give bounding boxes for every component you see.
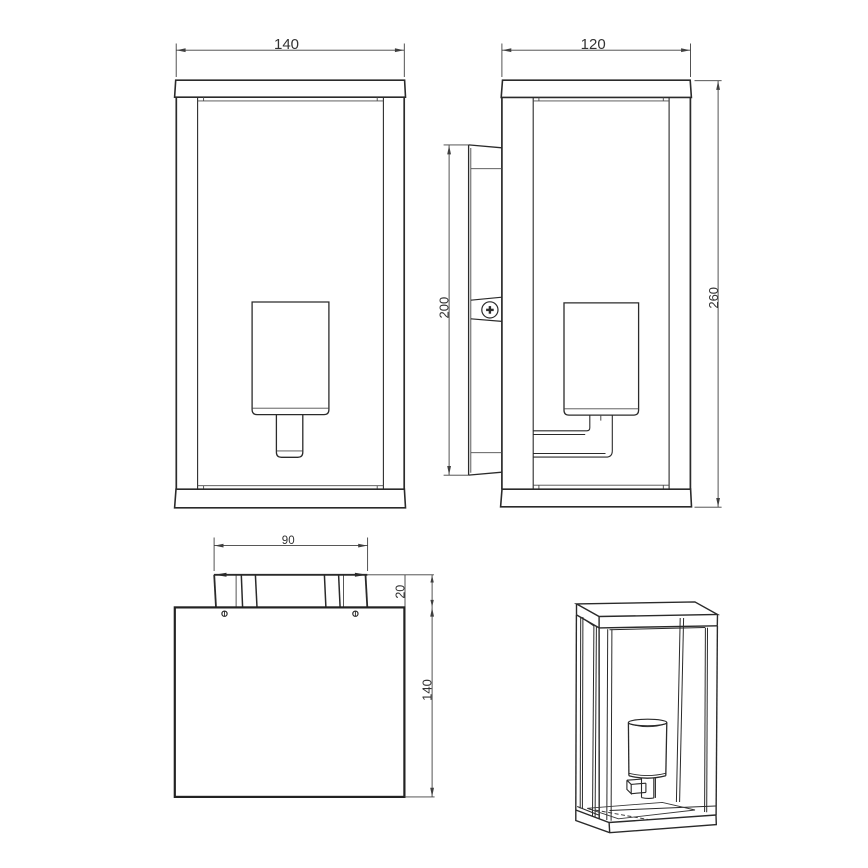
svg-text:120: 120 xyxy=(581,36,606,53)
svg-text:140: 140 xyxy=(419,679,434,701)
svg-text:90: 90 xyxy=(282,535,295,547)
svg-text:200: 200 xyxy=(436,297,451,319)
svg-text:140: 140 xyxy=(274,36,299,53)
svg-text:260: 260 xyxy=(706,287,721,309)
svg-text:20: 20 xyxy=(393,585,407,599)
